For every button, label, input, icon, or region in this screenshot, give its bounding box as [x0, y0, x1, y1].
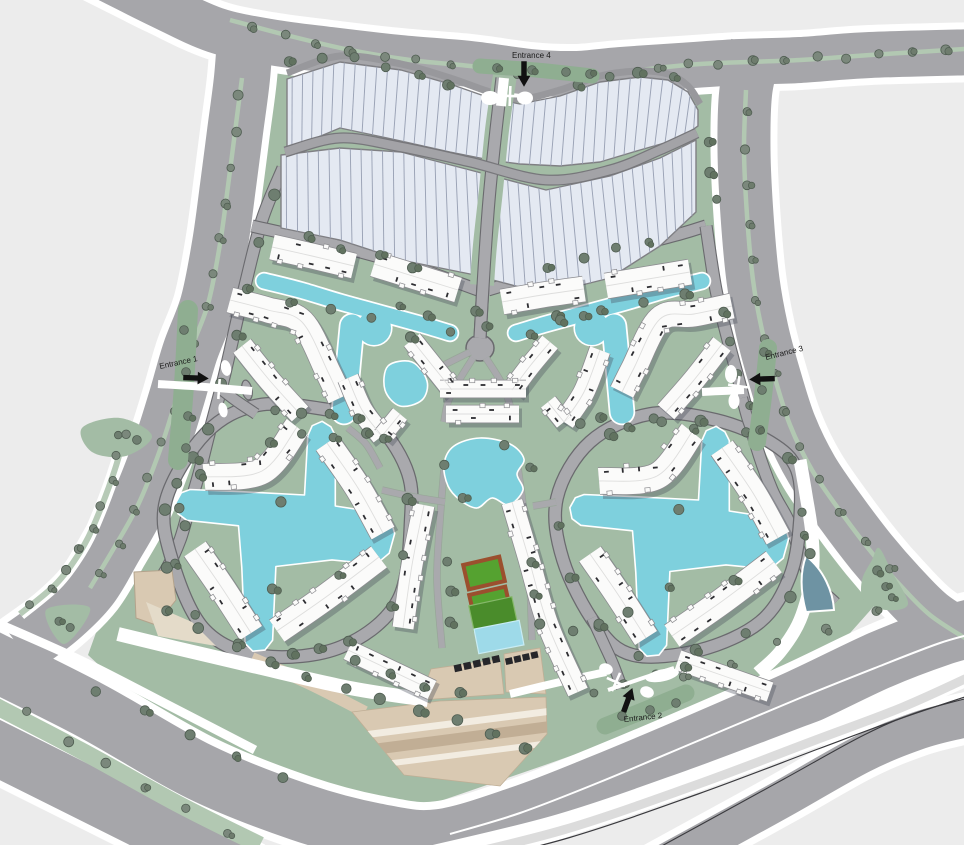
svg-text:Entrance 4: Entrance 4: [512, 51, 551, 60]
